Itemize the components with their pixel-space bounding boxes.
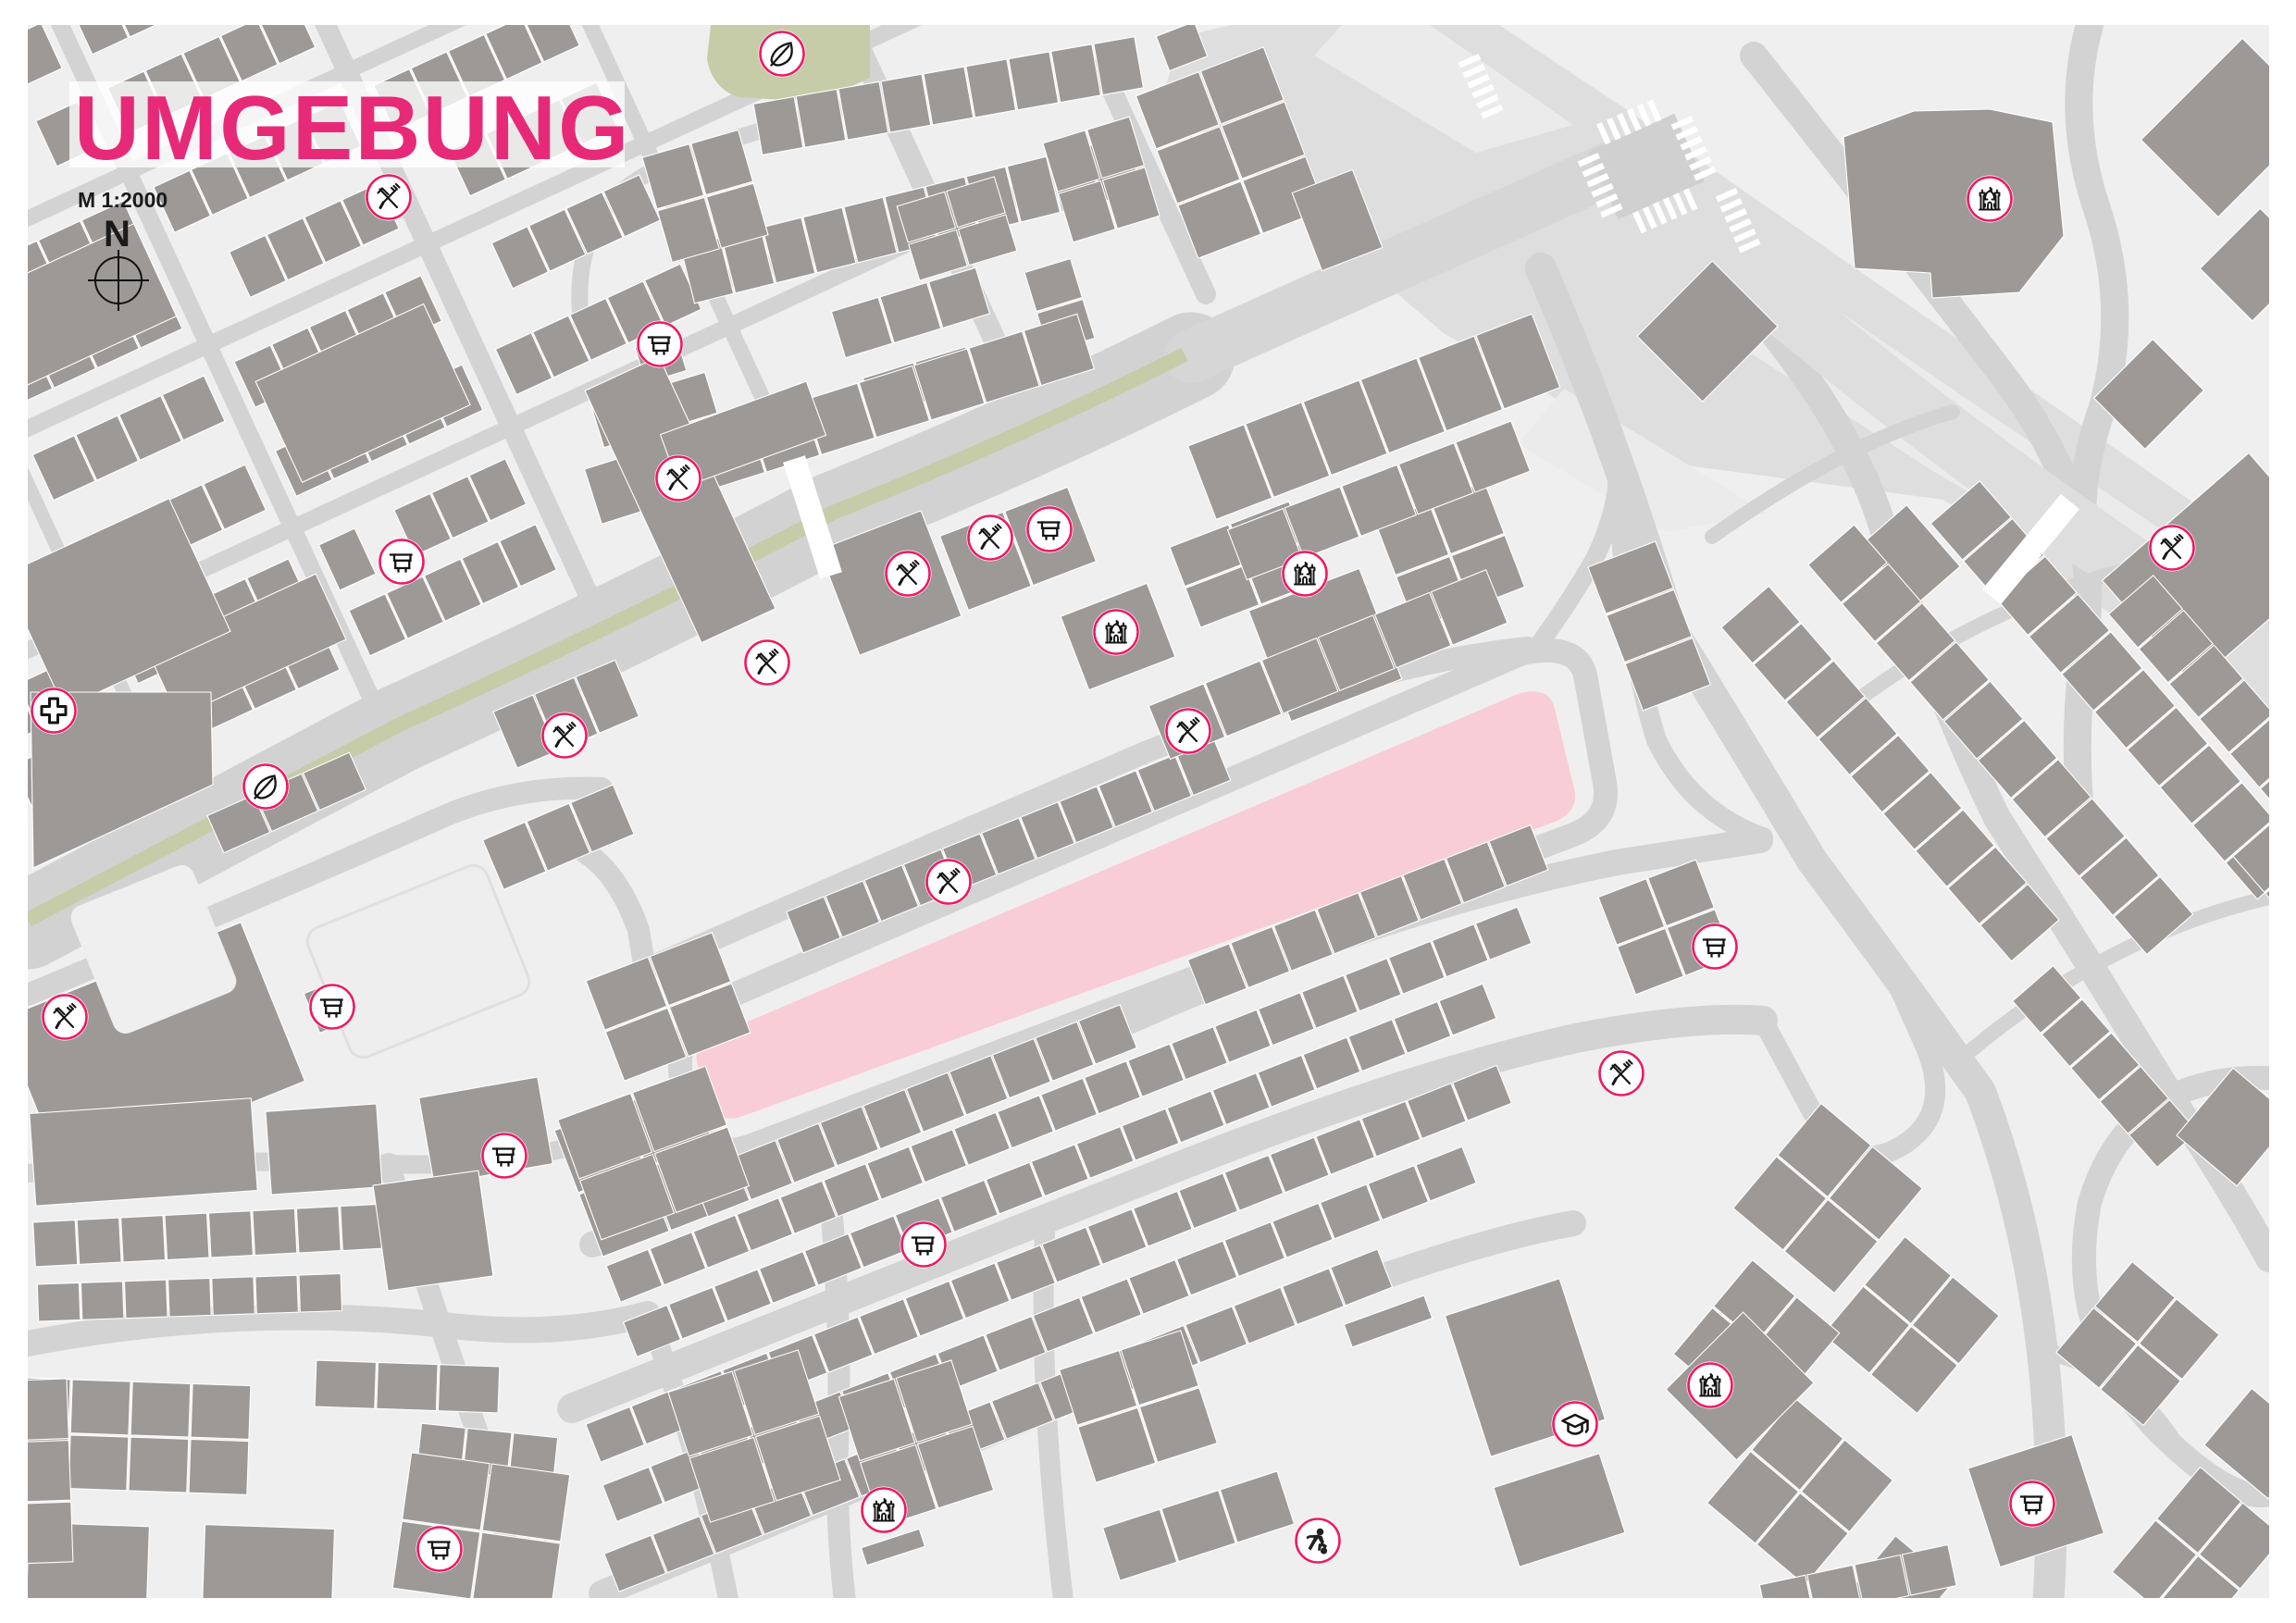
svg-text:UMGEBUNG: UMGEBUNG [74, 77, 631, 179]
svg-text:N: N [104, 214, 130, 254]
svg-text:M 1:2000: M 1:2000 [78, 188, 168, 212]
